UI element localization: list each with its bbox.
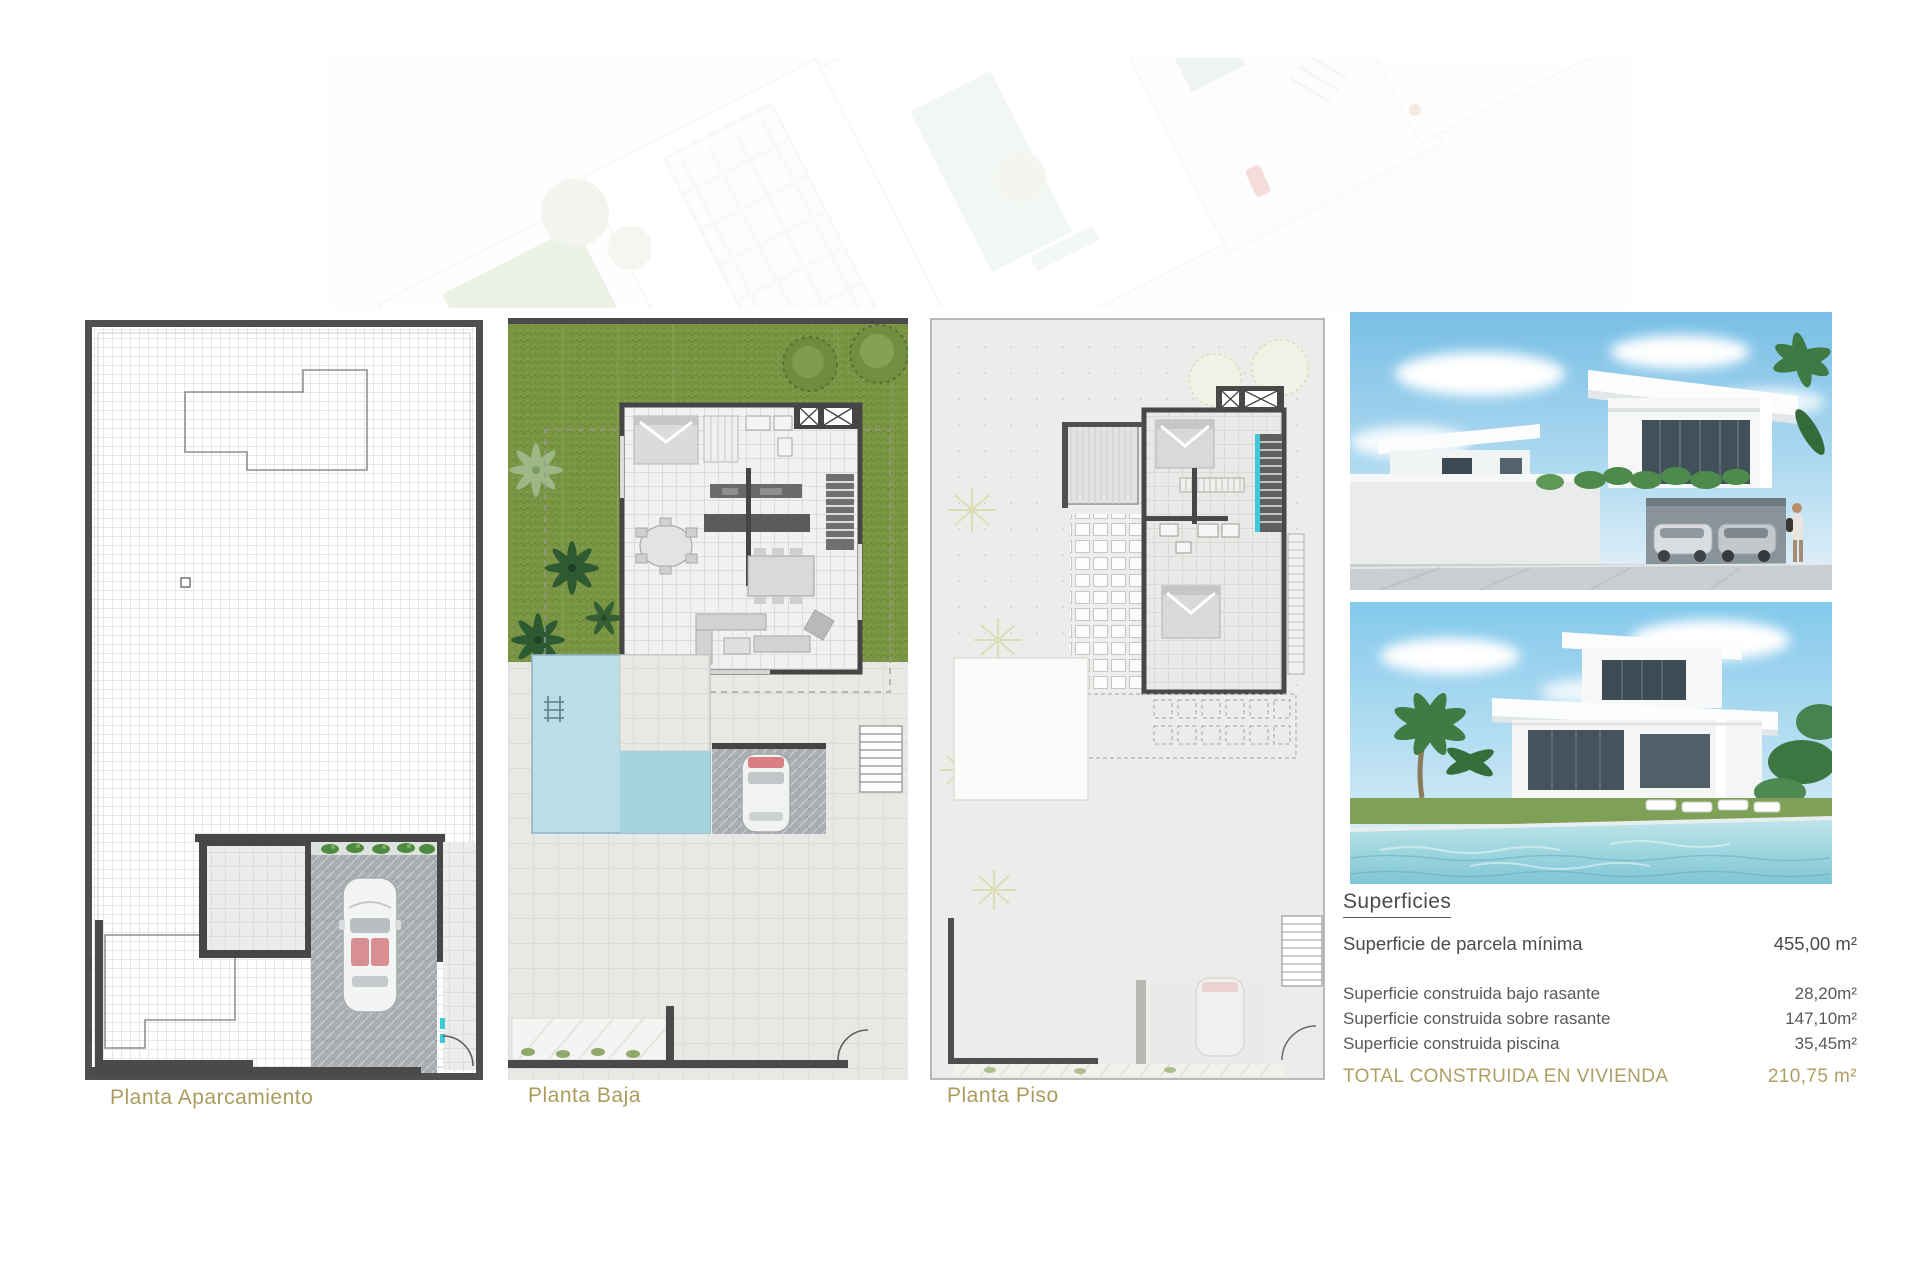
skylight-void bbox=[1062, 422, 1142, 508]
row-label: Superficie construida piscina bbox=[1343, 1031, 1559, 1056]
bedroom-2 bbox=[1162, 586, 1220, 638]
bottom-walkway-hatch bbox=[954, 1064, 1284, 1076]
planta-baja-drawing bbox=[508, 318, 908, 1080]
front-wall bbox=[1350, 480, 1600, 568]
superficies-heading: Superficies bbox=[1343, 890, 1451, 918]
aerial-overview-graphic bbox=[330, 58, 1630, 308]
row-label: Superficie de parcela mínima bbox=[1343, 933, 1583, 955]
planta-aparcamiento-drawing bbox=[85, 320, 483, 1080]
row-label: Superficie construida sobre rasante bbox=[1343, 1006, 1610, 1031]
exterior-render-street bbox=[1350, 312, 1832, 590]
bedroom bbox=[634, 416, 738, 464]
wardrobe bbox=[1180, 478, 1244, 492]
plan-label-aparcamiento: Planta Aparcamiento bbox=[110, 1086, 313, 1110]
row-bajo-rasante: Superficie construida bajo rasante 28,20… bbox=[1343, 981, 1857, 1006]
plan-label-baja: Planta Baja bbox=[528, 1084, 641, 1108]
parked-car-topview bbox=[339, 878, 401, 1012]
closet-column bbox=[1288, 534, 1304, 674]
row-parcela-minima: Superficie de parcela mínima 455,00 m² bbox=[1343, 933, 1857, 955]
car-topview bbox=[742, 754, 790, 832]
row-value: 28,20m² bbox=[1795, 981, 1857, 1006]
staircase-upper bbox=[1255, 434, 1282, 532]
row-label: Superficie construida bajo rasante bbox=[1343, 981, 1600, 1006]
entry-walkway bbox=[512, 1018, 666, 1060]
pool bbox=[1350, 818, 1832, 884]
staircase bbox=[826, 474, 854, 550]
house-ground-floor bbox=[620, 403, 862, 674]
row-value: 147,10m² bbox=[1785, 1006, 1857, 1031]
pavement bbox=[1350, 564, 1832, 590]
bedroom-1 bbox=[1156, 420, 1214, 468]
exterior-render-pool bbox=[1350, 602, 1832, 884]
garage-below-faint bbox=[1150, 978, 1270, 1074]
garage-opening bbox=[1646, 498, 1786, 564]
elevator-shaft bbox=[1216, 386, 1284, 412]
total-label: TOTAL CONSTRUIDA EN VIVIENDA bbox=[1343, 1066, 1668, 1088]
elevator-shaft bbox=[794, 403, 858, 429]
planta-piso-drawing bbox=[930, 318, 1325, 1080]
floorplan-planta-aparcamiento bbox=[85, 320, 483, 1080]
hatched-pier bbox=[1136, 980, 1146, 1076]
garage-ground bbox=[712, 743, 826, 834]
floorplan-planta-piso bbox=[930, 318, 1325, 1080]
aerial-faded-scene bbox=[330, 58, 1630, 308]
exterior-stairs bbox=[1282, 916, 1322, 986]
plan-label-piso: Planta Piso bbox=[947, 1084, 1059, 1108]
row-piscina: Superficie construida piscina 35,45m² bbox=[1343, 1031, 1857, 1056]
project-sheet: Planta Aparcamiento Planta Baja Planta P… bbox=[0, 0, 1920, 1280]
exterior-stairs bbox=[860, 726, 902, 792]
row-value: 455,00 m² bbox=[1774, 933, 1857, 955]
floorplan-planta-baja bbox=[508, 318, 908, 1080]
street-render-graphic bbox=[1350, 312, 1832, 590]
swimming-pool bbox=[532, 655, 710, 833]
north-boundary-wall bbox=[508, 318, 908, 324]
row-value: 35,45m² bbox=[1795, 1031, 1857, 1056]
row-total-construida: TOTAL CONSTRUIDA EN VIVIENDA 210,75 m² bbox=[1343, 1066, 1857, 1088]
storage-room bbox=[203, 842, 309, 954]
dining-table-large bbox=[748, 548, 814, 604]
superficies-table: Superficies Superficie de parcela mínima… bbox=[1343, 890, 1857, 1088]
upper-floor bbox=[1144, 386, 1304, 692]
pool-render-graphic bbox=[1350, 602, 1832, 884]
row-sobre-rasante: Superficie construida sobre rasante 147,… bbox=[1343, 1006, 1857, 1031]
pool-void-below bbox=[954, 658, 1088, 800]
aerial-overview-image bbox=[330, 58, 1630, 308]
total-value: 210,75 m² bbox=[1768, 1066, 1857, 1088]
